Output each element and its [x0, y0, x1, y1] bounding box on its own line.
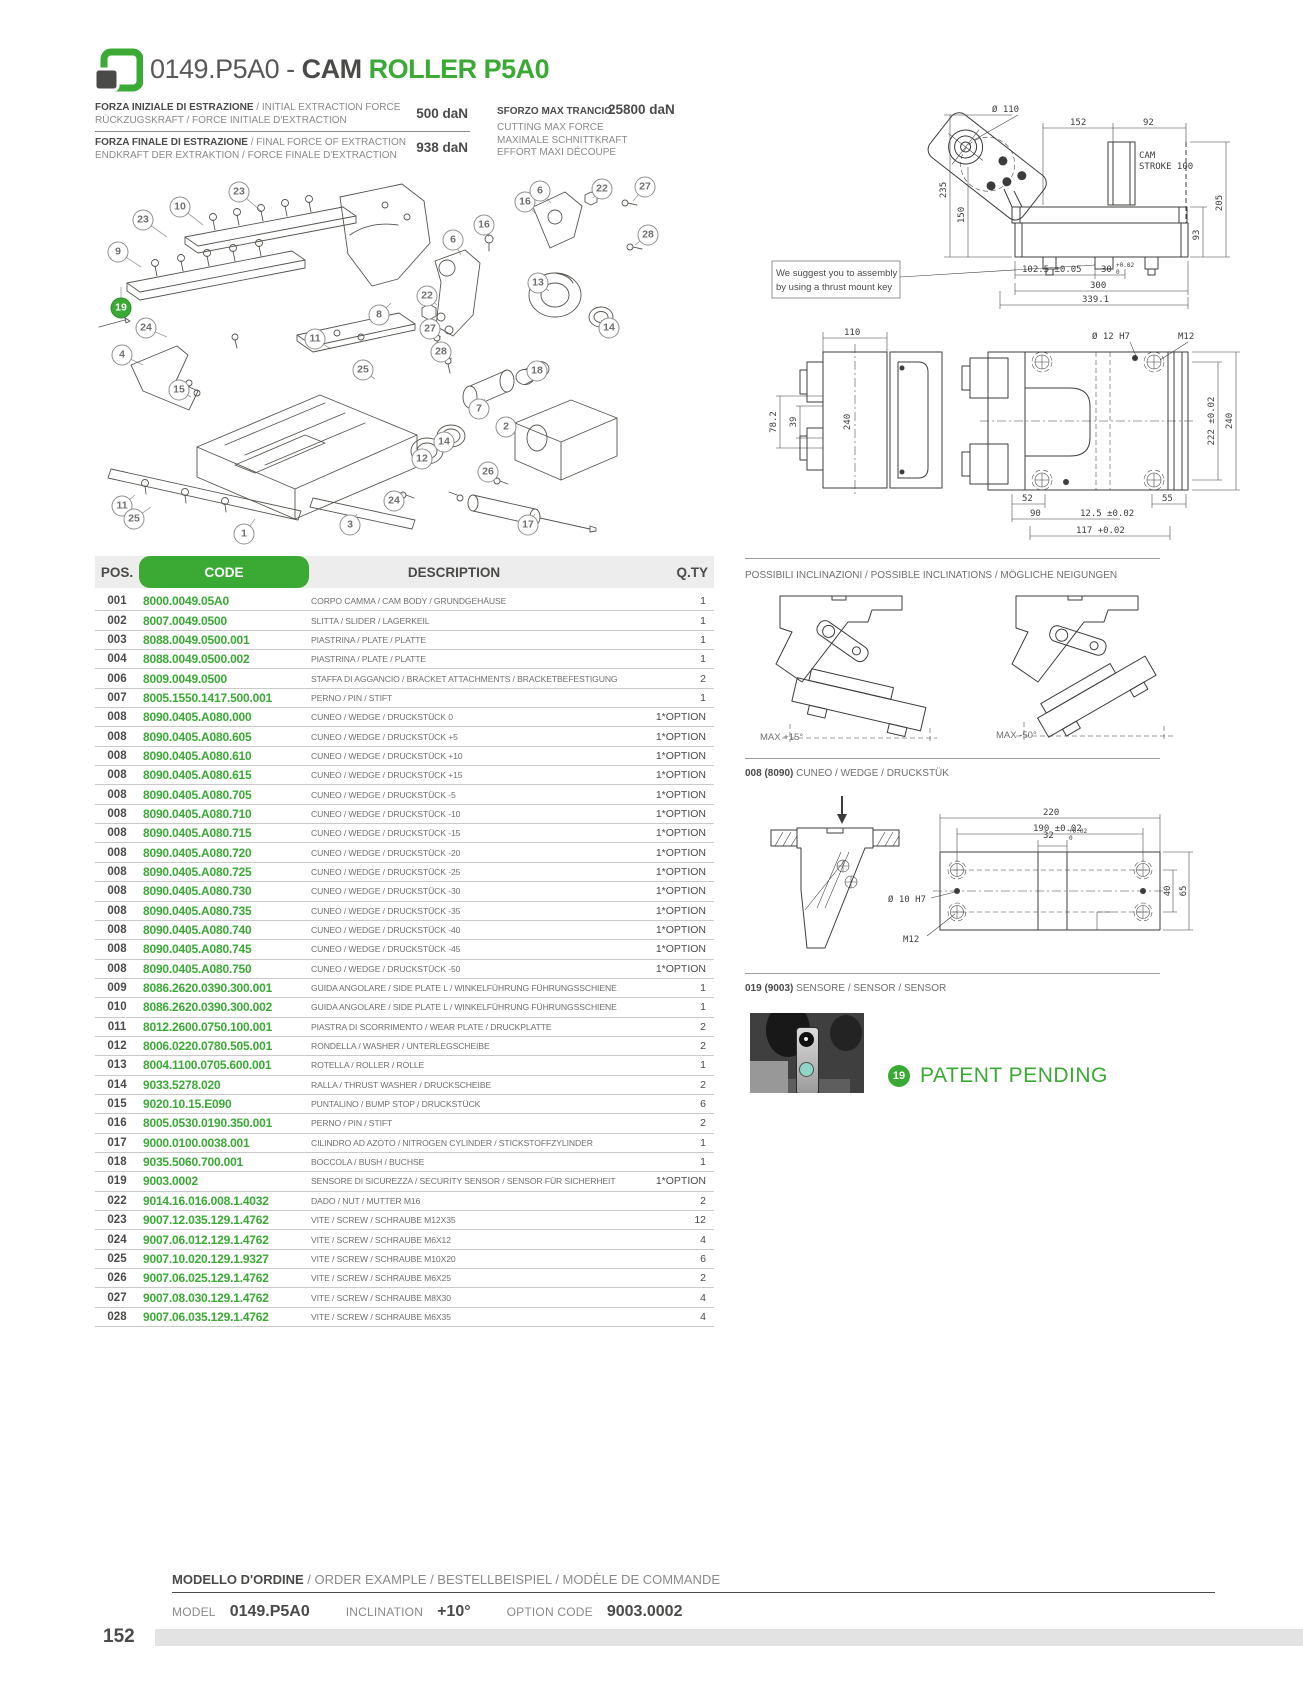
desc-cell: PIASTRA DI SCORRIMENTO / WEAR PLATE / DR…: [311, 1022, 623, 1032]
balloon-callout-16: 16: [474, 215, 495, 236]
table-row: 0189035.5060.700.001BOCCOLA / BUSH / BUC…: [95, 1153, 714, 1172]
code-cell: 8012.2600.0750.100.001: [139, 1020, 311, 1034]
cutting-force-sub: CUTTING MAX FORCE MAXIMALE SCHNITTKRAFT …: [497, 122, 628, 160]
pos-cell: 008: [95, 827, 139, 839]
desc-cell: RALLA / THRUST WASHER / DRUCKSCHEIBE: [311, 1080, 623, 1090]
inclinations-title: POSSIBILI INCLINAZIONI / POSSIBLE INCLIN…: [745, 570, 1117, 581]
pos-cell: 001: [95, 595, 139, 607]
qty-cell: 6: [623, 1098, 714, 1110]
desc-cell: CUNEO / WEDGE / DRUCKSTÜCK +15: [311, 770, 623, 780]
section-divider: [745, 758, 1160, 759]
svg-text:MAX +15°: MAX +15°: [760, 732, 803, 743]
desc-cell: STAFFA DI AGGANCIO / BRACKET ATTACHMENTS…: [311, 674, 623, 684]
pos-cell: 008: [95, 750, 139, 762]
table-row: 0088090.0405.A080.000CUNEO / WEDGE / DRU…: [95, 708, 714, 727]
inclination-label: INCLINATION: [346, 1605, 423, 1619]
code-cell: 9035.5060.700.001: [139, 1155, 311, 1169]
qty-cell: 1: [623, 1001, 714, 1013]
code-cell: 8090.0405.A080.735: [139, 904, 311, 918]
pos-cell: 016: [95, 1117, 139, 1129]
table-row: 0048088.0049.0500.002PIASTRINA / PLATE /…: [95, 650, 714, 669]
qty-cell: 1*OPTION: [623, 885, 714, 897]
dimension-drawing-side: Ø 110 152 92 CAM STROKE 100 235 150 205 …: [760, 85, 1300, 317]
balloon-19-badge: 19: [888, 1065, 910, 1087]
pos-cell: 008: [95, 905, 139, 917]
svg-text:220: 220: [1043, 808, 1059, 818]
sensor-lens: [799, 1032, 814, 1047]
pos-cell: 008: [95, 885, 139, 897]
pos-cell: 008: [95, 808, 139, 820]
desc-cell: CUNEO / WEDGE / DRUCKSTÜCK -5: [311, 790, 623, 800]
svg-text:Ø 10 H7: Ø 10 H7: [888, 894, 926, 905]
qty-cell: 1*OPTION: [623, 808, 714, 820]
table-header: POS. CODE DESCRIPTION Q.TY: [95, 556, 714, 588]
qty-cell: 4: [623, 1234, 714, 1246]
desc-cell: VITE / SCREW / SCHRAUBE M12X35: [311, 1215, 623, 1225]
balloon-layer: 2310239192441511258226162728166222728131…: [85, 165, 715, 545]
code-cell: 9007.12.035.129.1.4762: [139, 1213, 311, 1227]
qty-cell: 1*OPTION: [623, 750, 714, 762]
svg-text:55: 55: [1162, 494, 1173, 504]
balloon-callout-9: 9: [108, 242, 129, 263]
pos-cell: 008: [95, 866, 139, 878]
qty-cell: 1*OPTION: [623, 711, 714, 723]
desc-cell: CUNEO / WEDGE / DRUCKSTÜCK -50: [311, 964, 623, 974]
desc-cell: BOCCOLA / BUSH / BUCHSE: [311, 1157, 623, 1167]
qty-cell: 12: [623, 1214, 714, 1226]
table-row: 0128006.0220.0780.505.001RONDELLA / WASH…: [95, 1037, 714, 1056]
code-cell: 8090.0405.A080.000: [139, 710, 311, 724]
table-row: 0088090.0405.A080.720CUNEO / WEDGE / DRU…: [95, 843, 714, 862]
table-row: 0179000.0100.0038.001CILINDRO AD AZOTO /…: [95, 1134, 714, 1153]
pos-cell: 007: [95, 692, 139, 704]
qty-cell: 1: [623, 615, 714, 627]
code-cell: 8007.0049.0500: [139, 614, 311, 628]
svg-text:+0.02: +0.02: [1069, 828, 1087, 835]
code-cell: 9007.06.035.129.1.4762: [139, 1310, 311, 1324]
balloon-callout-6: 6: [443, 230, 464, 251]
page-title: 0149.P5A0 - CAM ROLLER P5A0: [150, 54, 549, 85]
balloon-callout-1: 1: [234, 524, 255, 545]
code-cell: 9020.10.15.E090: [139, 1097, 311, 1111]
desc-cell: SENSORE DI SICUREZZA / SECURITY SENSOR /…: [311, 1176, 623, 1186]
table-row: 0088090.0405.A080.610CUNEO / WEDGE / DRU…: [95, 747, 714, 766]
pos-cell: 027: [95, 1292, 139, 1304]
desc-cell: CUNEO / WEDGE / DRUCKSTÜCK +10: [311, 751, 623, 761]
qty-cell: 1: [623, 595, 714, 607]
inclination-value: +10°: [437, 1603, 471, 1621]
svg-text:32: 32: [1043, 831, 1054, 841]
sensor-photo: [750, 1013, 864, 1093]
svg-text:12.5 ±0.02: 12.5 ±0.02: [1080, 509, 1134, 519]
qty-cell: 1*OPTION: [623, 866, 714, 878]
desc-cell: PERNO / PIN / STIFT: [311, 693, 623, 703]
table-row: 0038088.0049.0500.001PIASTRINA / PLATE /…: [95, 631, 714, 650]
table-row: 0259007.10.020.129.1.9327VITE / SCREW / …: [95, 1250, 714, 1269]
qty-cell: 6: [623, 1253, 714, 1265]
svg-text:0: 0: [1116, 269, 1120, 276]
pos-cell: 014: [95, 1079, 139, 1091]
code-cell: 8086.2620.0390.300.002: [139, 1000, 311, 1014]
code-cell: 8086.2620.0390.300.001: [139, 981, 311, 995]
balloon-callout-28: 28: [431, 342, 452, 363]
balloon-callout-23: 23: [133, 210, 154, 231]
pos-cell: 010: [95, 1001, 139, 1013]
balloon-callout-25: 25: [124, 509, 145, 530]
qty-cell: 1*OPTION: [623, 769, 714, 781]
code-cell: 8090.0405.A080.720: [139, 846, 311, 860]
pos-cell: 008: [95, 847, 139, 859]
cutting-force-value: 25800 daN: [608, 102, 675, 117]
balloon-callout-14: 14: [599, 318, 620, 339]
cutting-force-title: SFORZO MAX TRANCIO: [497, 106, 612, 119]
pos-cell: 008: [95, 943, 139, 955]
pos-cell: 003: [95, 634, 139, 646]
table-row: 0088090.0405.A080.725CUNEO / WEDGE / DRU…: [95, 863, 714, 882]
table-row: 0088090.0405.A080.750CUNEO / WEDGE / DRU…: [95, 960, 714, 979]
pos-cell: 008: [95, 769, 139, 781]
table-row: 0159020.10.15.E090PUNTALINO / BUMP STOP …: [95, 1095, 714, 1114]
qty-cell: 1*OPTION: [623, 731, 714, 743]
table-row: 0118012.2600.0750.100.001PIASTRA DI SCOR…: [95, 1018, 714, 1037]
svg-text:92: 92: [1143, 118, 1154, 128]
code-cell: 8005.0530.0190.350.001: [139, 1116, 311, 1130]
table-row: 0279007.08.030.129.1.4762VITE / SCREW / …: [95, 1288, 714, 1307]
desc-cell: CUNEO / WEDGE / DRUCKSTÜCK -40: [311, 925, 623, 935]
code-cell: 8090.0405.A080.605: [139, 730, 311, 744]
code-cell: 9007.06.025.129.1.4762: [139, 1271, 311, 1285]
code-cell: 8000.0049.05A0: [139, 594, 311, 608]
pos-cell: 013: [95, 1059, 139, 1071]
pos-cell: 008: [95, 924, 139, 936]
desc-cell: CUNEO / WEDGE / DRUCKSTÜCK -45: [311, 944, 623, 954]
sensor-section-title: 019 (9003) SENSORE / SENSOR / SENSOR: [745, 983, 946, 994]
svg-text:MAX -50°: MAX -50°: [996, 730, 1037, 741]
qty-cell: 1*OPTION: [623, 963, 714, 975]
qty-cell: 1: [623, 634, 714, 646]
pos-cell: 008: [95, 789, 139, 801]
balloon-callout-4: 4: [112, 345, 133, 366]
table-row: 0269007.06.025.129.1.4762VITE / SCREW / …: [95, 1269, 714, 1288]
table-row: 0199003.0002SENSORE DI SICUREZZA / SECUR…: [95, 1172, 714, 1191]
qty-cell: 4: [623, 1292, 714, 1304]
balloon-callout-13: 13: [528, 273, 549, 294]
balloon-callout-3: 3: [340, 515, 361, 536]
table-row: 0098086.2620.0390.300.001GUIDA ANGOLARE …: [95, 979, 714, 998]
balloon-callout-17: 17: [518, 515, 539, 536]
desc-cell: PIASTRINA / PLATE / PLATTE: [311, 654, 623, 664]
svg-text:240: 240: [1225, 413, 1235, 429]
table-row: 0078005.1550.1417.500.001PERNO / PIN / S…: [95, 689, 714, 708]
svg-text:STROKE 100: STROKE 100: [1139, 162, 1193, 172]
balloon-callout-12: 12: [412, 449, 433, 470]
svg-text:52: 52: [1022, 494, 1033, 504]
balloon-callout-2: 2: [496, 417, 517, 438]
qty-cell: 2: [623, 673, 714, 685]
table-row: 0138004.1100.0705.600.001ROTELLA / ROLLE…: [95, 1056, 714, 1075]
table-row: 0088090.0405.A080.745CUNEO / WEDGE / DRU…: [95, 940, 714, 959]
page-number: 152: [103, 1626, 135, 1648]
section-divider: [745, 973, 1160, 974]
qty-cell: 1: [623, 692, 714, 704]
code-cell: 9007.06.012.129.1.4762: [139, 1233, 311, 1247]
pos-cell: 026: [95, 1272, 139, 1284]
desc-cell: DADO / NUT / MUTTER M16: [311, 1196, 623, 1206]
qty-cell: 1*OPTION: [623, 924, 714, 936]
pos-cell: 008: [95, 963, 139, 975]
code-cell: 8090.0405.A080.615: [139, 768, 311, 782]
code-cell: 8090.0405.A080.715: [139, 826, 311, 840]
table-row: 0088090.0405.A080.710CUNEO / WEDGE / DRU…: [95, 805, 714, 824]
svg-text:117 +0.02: 117 +0.02: [1076, 526, 1125, 536]
code-cell: 9007.10.020.129.1.9327: [139, 1252, 311, 1266]
svg-text:90: 90: [1030, 509, 1041, 519]
table-row: 0168005.0530.0190.350.001PERNO / PIN / S…: [95, 1114, 714, 1133]
svg-text:110: 110: [844, 328, 860, 338]
desc-cell: CUNEO / WEDGE / DRUCKSTÜCK -15: [311, 828, 623, 838]
sensor-indicator: [799, 1062, 814, 1077]
qty-cell: 1: [623, 982, 714, 994]
desc-cell: VITE / SCREW / SCHRAUBE M6X12: [311, 1235, 623, 1245]
svg-text:30: 30: [1101, 265, 1112, 275]
code-cell: 8090.0405.A080.745: [139, 942, 311, 956]
table-row: 0068009.0049.0500STAFFA DI AGGANCIO / BR…: [95, 669, 714, 688]
desc-cell: RONDELLA / WASHER / UNTERLEGSCHEIBE: [311, 1041, 623, 1051]
pos-cell: 012: [95, 1040, 139, 1052]
desc-cell: CILINDRO AD AZOTO / NITROGEN CYLINDER / …: [311, 1138, 623, 1148]
code-cell: 8088.0049.0500.002: [139, 652, 311, 666]
catalog-page: 0149.P5A0 - CAM ROLLER P5A0 FORZA INIZIA…: [0, 0, 1303, 1683]
balloon-callout-10: 10: [170, 197, 191, 218]
svg-text:by using a thrust mount key: by using a thrust mount key: [776, 282, 892, 293]
qty-cell: 1: [623, 1156, 714, 1168]
svg-text:+0.02: +0.02: [1116, 262, 1134, 269]
code-cell: 8090.0405.A080.740: [139, 923, 311, 937]
code-cell: 8088.0049.0500.001: [139, 633, 311, 647]
desc-cell: CUNEO / WEDGE / DRUCKSTÜCK +5: [311, 732, 623, 742]
balloon-callout-22: 22: [417, 286, 438, 307]
table-row: 0249007.06.012.129.1.4762VITE / SCREW / …: [95, 1230, 714, 1249]
desc-cell: PUNTALINO / BUMP STOP / DRUCKSTÜCK: [311, 1099, 623, 1109]
pos-cell: 018: [95, 1156, 139, 1168]
photo-block: [750, 1061, 788, 1093]
desc-cell: CUNEO / WEDGE / DRUCKSTÜCK -30: [311, 886, 623, 896]
code-cell: 8090.0405.A080.610: [139, 749, 311, 763]
balloon-callout-23: 23: [229, 182, 250, 203]
code-cell: 8090.0405.A080.730: [139, 884, 311, 898]
qty-cell: 1*OPTION: [623, 789, 714, 801]
qty-cell: 2: [623, 1040, 714, 1052]
pos-cell: 008: [95, 731, 139, 743]
desc-cell: PERNO / PIN / STIFT: [311, 1118, 623, 1128]
order-rule: [172, 1592, 1215, 1593]
svg-text:205: 205: [1215, 195, 1225, 211]
dimension-drawing-front: 110 78.2 39 240 Ø 12 H7 M12 52 55 90 12.…: [740, 298, 1300, 548]
balloon-callout-11: 11: [305, 329, 326, 350]
footer-bar: [155, 1629, 1303, 1646]
pos-cell: 008: [95, 711, 139, 723]
code-cell: 8004.1100.0705.600.001: [139, 1058, 311, 1072]
wedge-section-title: 008 (8090) CUNEO / WEDGE / DRUCKSTÜK: [745, 768, 949, 779]
svg-text:M12: M12: [1178, 332, 1194, 342]
pos-cell: 019: [95, 1175, 139, 1187]
desc-cell: CORPO CAMMA / CAM BODY / GRUNDGEHÄUSE: [311, 596, 623, 606]
table-row: 0088090.0405.A080.715CUNEO / WEDGE / DRU…: [95, 824, 714, 843]
qty-cell: 2: [623, 1021, 714, 1033]
code-cell: 8090.0405.A080.750: [139, 962, 311, 976]
table-row: 0018000.0049.05A0CORPO CAMMA / CAM BODY …: [95, 592, 714, 611]
column-header-description: DESCRIPTION: [309, 556, 599, 588]
balloon-callout-27: 27: [420, 319, 441, 340]
code-cell: 9007.08.030.129.1.4762: [139, 1291, 311, 1305]
table-row: 0108086.2620.0390.300.002GUIDA ANGOLARE …: [95, 998, 714, 1017]
model-label: MODEL: [172, 1605, 216, 1619]
code-cell: 8090.0405.A080.710: [139, 807, 311, 821]
code-cell: 9003.0002: [139, 1174, 311, 1188]
desc-cell: CUNEO / WEDGE / DRUCKSTÜCK -10: [311, 809, 623, 819]
inclination-right-drawing: MAX -50°: [988, 588, 1203, 748]
pos-cell: 022: [95, 1195, 139, 1207]
photo-hole: [830, 1015, 862, 1051]
qty-cell: 1*OPTION: [623, 827, 714, 839]
code-cell: 9033.5278.020: [139, 1078, 311, 1092]
svg-text:65: 65: [1179, 886, 1189, 897]
pos-cell: 028: [95, 1311, 139, 1323]
code-cell: 8005.1550.1417.500.001: [139, 691, 311, 705]
svg-text:M12: M12: [903, 935, 919, 945]
column-header-pos: POS.: [95, 556, 139, 588]
qty-cell: 1: [623, 653, 714, 665]
pos-cell: 002: [95, 615, 139, 627]
balloon-callout-22: 22: [592, 179, 613, 200]
brand-logo-icon: [93, 48, 143, 96]
pos-cell: 009: [95, 982, 139, 994]
desc-cell: VITE / SCREW / SCHRAUBE M10X20: [311, 1254, 623, 1264]
qty-cell: 2: [623, 1272, 714, 1284]
initial-force-value: 500 daN: [368, 106, 468, 121]
table-row: 0088090.0405.A080.735CUNEO / WEDGE / DRU…: [95, 902, 714, 921]
pos-cell: 011: [95, 1021, 139, 1033]
pos-cell: 004: [95, 653, 139, 665]
pos-cell: 024: [95, 1234, 139, 1246]
svg-text:93: 93: [1192, 230, 1202, 241]
column-header-qty: Q.TY: [676, 556, 708, 588]
table-row: 0239007.12.035.129.1.4762VITE / SCREW / …: [95, 1211, 714, 1230]
patent-pending-note: 19 PATENT PENDING: [888, 1064, 1108, 1088]
option-code-label: OPTION CODE: [507, 1605, 593, 1619]
svg-text:78.2: 78.2: [769, 411, 779, 433]
table-row: 0088090.0405.A080.705CUNEO / WEDGE / DRU…: [95, 785, 714, 804]
pos-cell: 017: [95, 1137, 139, 1149]
desc-cell: CUNEO / WEDGE / DRUCKSTÜCK -25: [311, 867, 623, 877]
table-row: 0028007.0049.0500SLITTA / SLIDER / LAGER…: [95, 611, 714, 630]
balloon-19-highlight: 19: [111, 298, 132, 319]
code-cell: 9000.0100.0038.001: [139, 1136, 311, 1150]
svg-text:222 ±0.02: 222 ±0.02: [1207, 397, 1217, 446]
balloon-callout-27: 27: [635, 177, 656, 198]
svg-text:150: 150: [957, 207, 967, 223]
svg-text:152: 152: [1070, 118, 1086, 128]
spec-divider: [95, 131, 470, 132]
svg-text:39: 39: [789, 417, 799, 428]
table-row: 0088090.0405.A080.605CUNEO / WEDGE / DRU…: [95, 727, 714, 746]
balloon-callout-14: 14: [434, 432, 455, 453]
table-row: 0088090.0405.A080.730CUNEO / WEDGE / DRU…: [95, 882, 714, 901]
desc-cell: VITE / SCREW / SCHRAUBE M8X30: [311, 1293, 623, 1303]
model-value: 0149.P5A0: [230, 1603, 310, 1621]
balloon-callout-26: 26: [478, 462, 499, 483]
svg-text:0: 0: [1069, 835, 1073, 842]
order-example-row: MODEL 0149.P5A0 INCLINATION +10° OPTION …: [172, 1600, 1215, 1624]
code-cell: 8090.0405.A080.725: [139, 865, 311, 879]
inclination-left-drawing: MAX +15°: [752, 588, 967, 748]
qty-cell: 1*OPTION: [623, 905, 714, 917]
pos-cell: 023: [95, 1214, 139, 1226]
desc-cell: VITE / SCREW / SCHRAUBE M6X35: [311, 1312, 623, 1322]
qty-cell: 2: [623, 1079, 714, 1091]
final-force-label: FORZA FINALE DI ESTRAZIONE / FINAL FORCE…: [95, 137, 375, 162]
svg-text:We suggest you to assembly: We suggest you to assembly: [776, 268, 898, 279]
desc-cell: CUNEO / WEDGE / DRUCKSTÜCK -35: [311, 906, 623, 916]
balloon-callout-15: 15: [169, 380, 190, 401]
desc-cell: SLITTA / SLIDER / LAGERKEIL: [311, 616, 623, 626]
table-row: 0289007.06.035.129.1.4762VITE / SCREW / …: [95, 1308, 714, 1327]
sensor-body: [796, 1027, 819, 1093]
qty-cell: 1*OPTION: [623, 943, 714, 955]
qty-cell: 4: [623, 1311, 714, 1323]
svg-text:300: 300: [1090, 281, 1106, 291]
wedge-drawing: 220 190 ±0.02 32 +0.02 0 Ø 10 H7 M12 40 …: [745, 790, 1215, 962]
svg-text:Ø 110: Ø 110: [992, 104, 1019, 115]
qty-cell: 1*OPTION: [623, 847, 714, 859]
final-force-value: 938 daN: [368, 140, 468, 155]
qty-cell: 2: [623, 1117, 714, 1129]
pos-cell: 015: [95, 1098, 139, 1110]
initial-force-label: FORZA INIZIALE DI ESTRAZIONE / INITIAL E…: [95, 102, 375, 127]
order-example-title: MODELLO D'ORDINE / ORDER EXAMPLE / BESTE…: [172, 1572, 720, 1587]
pos-cell: 006: [95, 673, 139, 685]
balloon-callout-18: 18: [527, 361, 548, 382]
section-divider: [745, 558, 1160, 559]
exploded-view-diagram: 2310239192441511258226162728166222728131…: [85, 165, 715, 545]
balloon-callout-7: 7: [469, 399, 490, 420]
svg-text:240: 240: [843, 414, 853, 430]
balloon-callout-24: 24: [136, 318, 157, 339]
pos-cell: 025: [95, 1253, 139, 1265]
table-row: 0088090.0405.A080.740CUNEO / WEDGE / DRU…: [95, 921, 714, 940]
svg-text:235: 235: [939, 182, 949, 198]
code-cell: 8090.0405.A080.705: [139, 788, 311, 802]
table-row: 0088090.0405.A080.615CUNEO / WEDGE / DRU…: [95, 766, 714, 785]
product-code: 0149.P5A0 -: [150, 54, 302, 84]
table-row: 0149033.5278.020RALLA / THRUST WASHER / …: [95, 1076, 714, 1095]
svg-text:CAM: CAM: [1139, 151, 1156, 161]
desc-cell: VITE / SCREW / SCHRAUBE M6X25: [311, 1273, 623, 1283]
qty-cell: 1: [623, 1137, 714, 1149]
desc-cell: GUIDA ANGOLARE / SIDE PLATE L / WINKELFÜ…: [311, 983, 623, 993]
balloon-callout-28: 28: [638, 225, 659, 246]
desc-cell: CUNEO / WEDGE / DRUCKSTÜCK -20: [311, 848, 623, 858]
column-header-code: CODE: [139, 556, 309, 588]
table-row: 0229014.16.016.008.1.4032DADO / NUT / MU…: [95, 1192, 714, 1211]
qty-cell: 1: [623, 1059, 714, 1071]
desc-cell: ROTELLA / ROLLER / ROLLE: [311, 1060, 623, 1070]
patent-pending-label: PATENT PENDING: [920, 1064, 1108, 1088]
qty-cell: 1*OPTION: [623, 1175, 714, 1187]
code-cell: 9014.16.016.008.1.4032: [139, 1194, 311, 1208]
code-cell: 8006.0220.0780.505.001: [139, 1039, 311, 1053]
balloon-callout-8: 8: [369, 305, 390, 326]
